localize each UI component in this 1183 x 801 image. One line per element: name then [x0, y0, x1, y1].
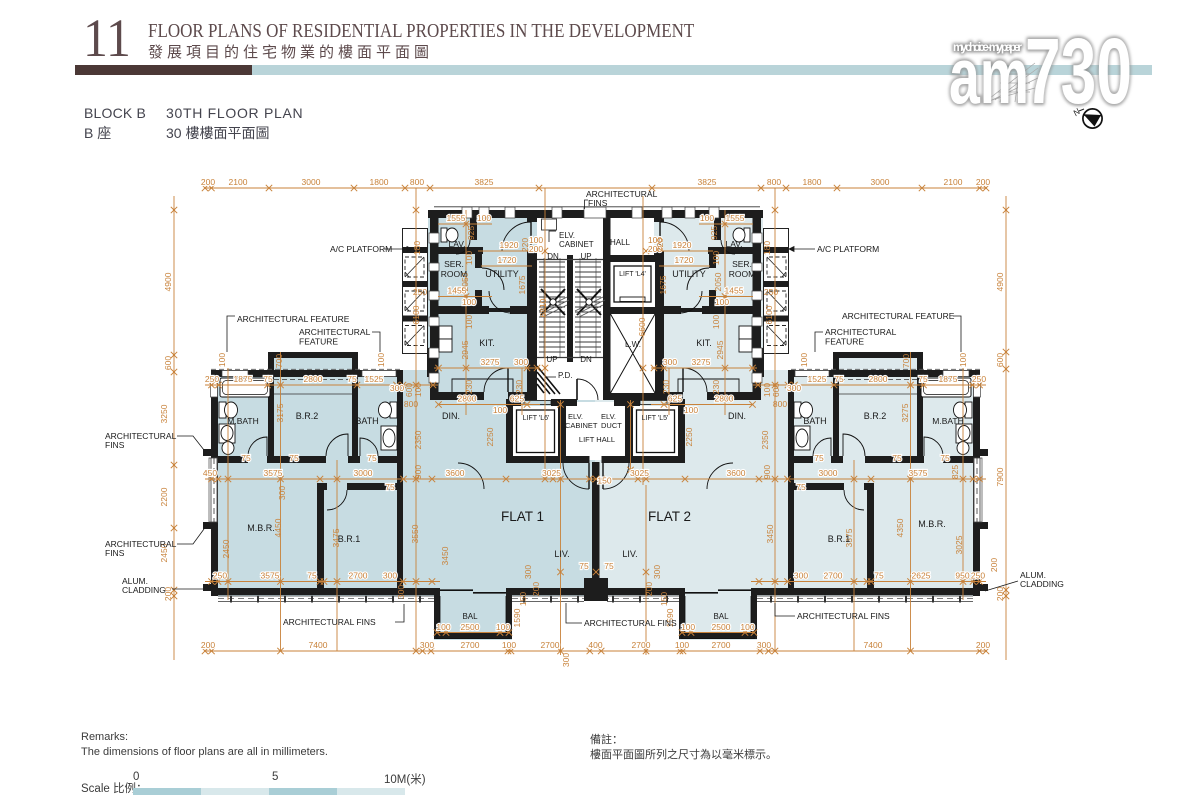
- svg-text:150: 150: [597, 476, 611, 486]
- svg-text:3025: 3025: [630, 468, 649, 478]
- svg-text:ROOM: ROOM: [729, 269, 755, 279]
- svg-text:BAL: BAL: [713, 612, 729, 621]
- svg-text:2700: 2700: [632, 640, 651, 650]
- svg-text:75: 75: [834, 374, 844, 384]
- svg-text:75: 75: [385, 482, 395, 492]
- svg-text:75: 75: [604, 561, 614, 571]
- svg-text:3175: 3175: [275, 403, 285, 422]
- svg-text:A/C PLATFORM: A/C PLATFORM: [817, 244, 879, 254]
- svg-text:300: 300: [383, 571, 397, 581]
- svg-text:3825: 3825: [698, 177, 717, 187]
- svg-text:300: 300: [420, 640, 434, 650]
- svg-text:3025: 3025: [954, 535, 964, 554]
- svg-text:2350: 2350: [760, 430, 770, 449]
- svg-text:75: 75: [289, 453, 299, 463]
- svg-text:HALL: HALL: [610, 238, 631, 247]
- svg-text:3450: 3450: [440, 546, 450, 565]
- svg-text:230: 230: [464, 380, 474, 394]
- svg-text:M.B.R.: M.B.R.: [247, 523, 275, 533]
- svg-text:FEATURE: FEATURE: [299, 337, 338, 347]
- svg-text:75: 75: [347, 374, 357, 384]
- svg-text:DIN.: DIN.: [728, 411, 746, 421]
- svg-text:SER.: SER.: [444, 259, 464, 269]
- svg-text:100: 100: [493, 405, 507, 415]
- svg-text:600: 600: [771, 383, 781, 397]
- svg-text:300: 300: [787, 383, 801, 393]
- svg-text:100: 100: [464, 315, 474, 329]
- svg-text:ARCHITECTURAL FINS: ARCHITECTURAL FINS: [283, 617, 376, 627]
- svg-text:75: 75: [874, 571, 884, 581]
- svg-text:600: 600: [163, 356, 173, 370]
- svg-text:2700: 2700: [712, 640, 731, 650]
- svg-text:2800: 2800: [869, 374, 888, 384]
- svg-text:2250: 2250: [485, 427, 495, 446]
- svg-text:1525: 1525: [808, 374, 827, 384]
- svg-text:3450: 3450: [765, 524, 775, 543]
- svg-text:LIFT 'L5': LIFT 'L5': [642, 415, 669, 422]
- svg-text:75: 75: [892, 453, 902, 463]
- svg-text:230: 230: [514, 380, 524, 394]
- svg-text:2050: 2050: [713, 272, 723, 291]
- svg-text:100: 100: [681, 622, 695, 632]
- svg-text:2625: 2625: [912, 571, 931, 581]
- svg-text:BATH: BATH: [803, 416, 826, 426]
- svg-text:CLADDING: CLADDING: [122, 585, 166, 595]
- svg-text:300: 300: [663, 357, 677, 367]
- svg-text:DN: DN: [547, 252, 559, 261]
- svg-text:ROOM: ROOM: [441, 269, 467, 279]
- svg-text:900: 900: [413, 465, 423, 479]
- svg-text:900: 900: [762, 465, 772, 479]
- svg-text:300: 300: [390, 383, 404, 393]
- svg-text:FINS: FINS: [588, 198, 608, 208]
- svg-text:100: 100: [799, 353, 809, 367]
- svg-text:SER.: SER.: [732, 259, 752, 269]
- svg-text:ARCHITECTURAL: ARCHITECTURAL: [299, 327, 371, 337]
- svg-text:600: 600: [995, 353, 1005, 367]
- svg-text:LAV.: LAV.: [448, 239, 465, 249]
- svg-text:100: 100: [711, 315, 721, 329]
- svg-text:100: 100: [715, 297, 729, 307]
- svg-text:2500: 2500: [461, 622, 480, 632]
- svg-text:B.R.1: B.R.1: [338, 534, 361, 544]
- svg-text:75: 75: [918, 374, 928, 384]
- svg-text:2700: 2700: [824, 571, 843, 581]
- svg-text:2700: 2700: [461, 640, 480, 650]
- svg-text:1920: 1920: [500, 240, 519, 250]
- svg-text:1455: 1455: [725, 286, 744, 296]
- svg-text:6600: 6600: [637, 317, 647, 336]
- svg-text:1590: 1590: [512, 608, 522, 627]
- svg-text:3000: 3000: [302, 177, 321, 187]
- svg-text:100: 100: [496, 622, 510, 632]
- svg-text:925: 925: [466, 226, 476, 240]
- svg-text:220: 220: [655, 238, 665, 252]
- svg-text:LIFT 'L4': LIFT 'L4': [619, 271, 646, 278]
- svg-text:250: 250: [971, 571, 985, 581]
- svg-text:400: 400: [588, 640, 602, 650]
- svg-text:700: 700: [274, 354, 284, 368]
- svg-text:100: 100: [684, 405, 698, 415]
- svg-text:ARCHITECTURAL FEATURE: ARCHITECTURAL FEATURE: [237, 314, 350, 324]
- svg-text:800: 800: [767, 177, 781, 187]
- svg-text:200: 200: [644, 582, 654, 596]
- svg-text:100: 100: [464, 251, 474, 265]
- svg-text:BATH: BATH: [355, 416, 378, 426]
- svg-text:DIN.: DIN.: [442, 411, 460, 421]
- svg-text:2800: 2800: [304, 374, 323, 384]
- svg-text:75: 75: [940, 453, 950, 463]
- svg-text:A/C PLATFORM: A/C PLATFORM: [330, 244, 392, 254]
- svg-text:ARCHITECTURAL FINS: ARCHITECTURAL FINS: [584, 618, 677, 628]
- svg-text:2350: 2350: [413, 430, 423, 449]
- svg-text:220: 220: [520, 238, 530, 252]
- svg-text:3275: 3275: [481, 357, 500, 367]
- svg-text:3275: 3275: [900, 403, 910, 422]
- svg-text:ARCHITECTURAL: ARCHITECTURAL: [825, 327, 897, 337]
- svg-text:3275: 3275: [692, 357, 711, 367]
- svg-text:180: 180: [412, 241, 422, 255]
- svg-text:ELV.: ELV.: [559, 231, 575, 240]
- svg-text:450: 450: [203, 468, 217, 478]
- svg-text:3575: 3575: [261, 571, 280, 581]
- svg-text:75: 75: [367, 453, 377, 463]
- svg-text:100: 100: [958, 353, 968, 367]
- svg-text:100: 100: [675, 640, 689, 650]
- svg-text:3000: 3000: [871, 177, 890, 187]
- svg-text:B.R.1: B.R.1: [828, 534, 851, 544]
- svg-text:100: 100: [436, 622, 450, 632]
- svg-text:800: 800: [404, 399, 418, 409]
- svg-text:250: 250: [213, 571, 227, 581]
- svg-text:2100: 2100: [944, 177, 963, 187]
- svg-text:250: 250: [972, 374, 986, 384]
- svg-text:1555: 1555: [447, 213, 466, 223]
- svg-text:1800: 1800: [803, 177, 822, 187]
- svg-text:300: 300: [277, 486, 287, 500]
- svg-text:75: 75: [579, 561, 589, 571]
- svg-text:ARCHITECTURAL FEATURE: ARCHITECTURAL FEATURE: [842, 311, 955, 321]
- svg-text:3550: 3550: [410, 524, 420, 543]
- svg-text:2945: 2945: [460, 340, 470, 359]
- svg-text:100: 100: [740, 622, 754, 632]
- svg-text:LAV.: LAV.: [725, 239, 742, 249]
- svg-text:FINS: FINS: [105, 548, 125, 558]
- svg-text:3250: 3250: [159, 404, 169, 423]
- svg-text:100: 100: [413, 383, 423, 397]
- svg-text:300: 300: [652, 565, 662, 579]
- svg-text:1875: 1875: [939, 374, 958, 384]
- svg-text:2450: 2450: [221, 539, 231, 558]
- svg-text:LIFT HALL: LIFT HALL: [579, 435, 615, 444]
- svg-text:CABINET: CABINET: [559, 240, 594, 249]
- svg-text:6810: 6810: [538, 298, 548, 317]
- svg-text:75: 75: [814, 453, 824, 463]
- svg-text:75: 75: [241, 453, 251, 463]
- svg-text:300: 300: [757, 640, 771, 650]
- svg-text:100: 100: [477, 213, 491, 223]
- svg-text:3825: 3825: [475, 177, 494, 187]
- svg-text:3575: 3575: [909, 468, 928, 478]
- svg-text:BAL: BAL: [462, 612, 478, 621]
- svg-text:200: 200: [989, 558, 999, 572]
- svg-text:2700: 2700: [349, 571, 368, 581]
- svg-text:200: 200: [201, 177, 215, 187]
- svg-text:250: 250: [764, 287, 778, 297]
- svg-text:700: 700: [901, 354, 911, 368]
- svg-text:FINS: FINS: [105, 440, 125, 450]
- svg-text:2700: 2700: [541, 640, 560, 650]
- svg-text:300: 300: [523, 565, 533, 579]
- svg-text:4900: 4900: [995, 272, 1005, 291]
- svg-text:L.W.: L.W.: [625, 340, 641, 349]
- svg-text:3600: 3600: [446, 468, 465, 478]
- svg-text:UTILITY: UTILITY: [672, 269, 706, 279]
- svg-text:75: 75: [796, 482, 806, 492]
- svg-text:800: 800: [773, 399, 787, 409]
- svg-text:100: 100: [462, 297, 476, 307]
- svg-text:100: 100: [700, 213, 714, 223]
- svg-text:4350: 4350: [895, 518, 905, 537]
- svg-text:7900: 7900: [995, 467, 1005, 486]
- svg-text:300: 300: [396, 585, 406, 599]
- svg-text:230: 230: [661, 380, 671, 394]
- svg-text:150: 150: [518, 592, 528, 606]
- svg-text:3575: 3575: [264, 468, 283, 478]
- svg-text:ARCHITECTURAL FINS: ARCHITECTURAL FINS: [797, 611, 890, 621]
- svg-text:FLAT 1: FLAT 1: [501, 509, 544, 524]
- svg-text:6100: 6100: [411, 305, 421, 324]
- svg-text:LIFT 'L6': LIFT 'L6': [523, 415, 550, 422]
- svg-text:3000: 3000: [819, 468, 838, 478]
- svg-text:800: 800: [410, 177, 424, 187]
- svg-text:B.R.2: B.R.2: [296, 411, 319, 421]
- svg-text:200: 200: [976, 640, 990, 650]
- svg-text:M.BATH: M.BATH: [932, 416, 963, 426]
- svg-text:200: 200: [976, 177, 990, 187]
- svg-text:LIV.: LIV.: [554, 549, 569, 559]
- svg-text:LIV.: LIV.: [622, 549, 637, 559]
- svg-text:100: 100: [376, 353, 386, 367]
- svg-text:1720: 1720: [498, 255, 517, 265]
- svg-text:DN: DN: [580, 355, 592, 364]
- svg-text:925: 925: [709, 226, 719, 240]
- svg-text:6100: 6100: [764, 305, 774, 324]
- svg-text:250: 250: [413, 287, 427, 297]
- svg-text:1675: 1675: [658, 275, 668, 294]
- svg-text:UP: UP: [546, 355, 557, 364]
- svg-text:100: 100: [502, 640, 516, 650]
- svg-text:230: 230: [711, 380, 721, 394]
- svg-text:CABINET: CABINET: [565, 421, 598, 430]
- svg-text:ELV.: ELV.: [568, 412, 583, 421]
- svg-text:1800: 1800: [370, 177, 389, 187]
- svg-text:4900: 4900: [163, 272, 173, 291]
- svg-text:100: 100: [711, 251, 721, 265]
- svg-text:UP: UP: [580, 252, 591, 261]
- svg-text:250: 250: [205, 374, 219, 384]
- svg-text:3000: 3000: [354, 468, 373, 478]
- svg-text:300: 300: [561, 653, 571, 667]
- svg-text:200: 200: [531, 582, 541, 596]
- svg-text:7400: 7400: [864, 640, 883, 650]
- svg-text:150: 150: [659, 592, 669, 606]
- svg-text:3600: 3600: [727, 468, 746, 478]
- svg-text:200: 200: [995, 587, 1005, 601]
- svg-text:1875: 1875: [234, 374, 253, 384]
- svg-text:300: 300: [794, 571, 808, 581]
- svg-text:1720: 1720: [675, 255, 694, 265]
- svg-text:100: 100: [217, 353, 227, 367]
- svg-text:KIT.: KIT.: [479, 338, 495, 348]
- svg-text:M.B.R.: M.B.R.: [918, 519, 946, 529]
- svg-text:200: 200: [201, 640, 215, 650]
- svg-text:KIT.: KIT.: [696, 338, 712, 348]
- svg-text:ELV.: ELV.: [601, 412, 616, 421]
- svg-text:M.BATH: M.BATH: [227, 416, 258, 426]
- svg-text:B.R.2: B.R.2: [864, 411, 887, 421]
- svg-text:2500: 2500: [712, 622, 731, 632]
- svg-text:950: 950: [955, 571, 969, 581]
- svg-text:200: 200: [529, 244, 543, 254]
- svg-text:1555: 1555: [726, 213, 745, 223]
- svg-text:100: 100: [762, 383, 772, 397]
- svg-text:300: 300: [514, 357, 528, 367]
- svg-text:825: 825: [950, 465, 960, 479]
- svg-text:DUCT: DUCT: [601, 421, 622, 430]
- svg-text:FLAT 2: FLAT 2: [648, 509, 691, 524]
- svg-text:3025: 3025: [542, 468, 561, 478]
- svg-text:1920: 1920: [673, 240, 692, 250]
- svg-text:1525: 1525: [365, 374, 384, 384]
- svg-text:180: 180: [762, 241, 772, 255]
- svg-text:2200: 2200: [159, 487, 169, 506]
- svg-text:75: 75: [307, 571, 317, 581]
- svg-text:2250: 2250: [684, 427, 694, 446]
- svg-text:7400: 7400: [309, 640, 328, 650]
- svg-text:FEATURE: FEATURE: [825, 337, 864, 347]
- svg-text:UTILITY: UTILITY: [485, 269, 519, 279]
- svg-text:CLADDING: CLADDING: [1020, 579, 1064, 589]
- svg-text:2100: 2100: [229, 177, 248, 187]
- svg-text:75: 75: [263, 374, 273, 384]
- svg-text:P.D.: P.D.: [558, 371, 573, 380]
- svg-text:2945: 2945: [715, 340, 725, 359]
